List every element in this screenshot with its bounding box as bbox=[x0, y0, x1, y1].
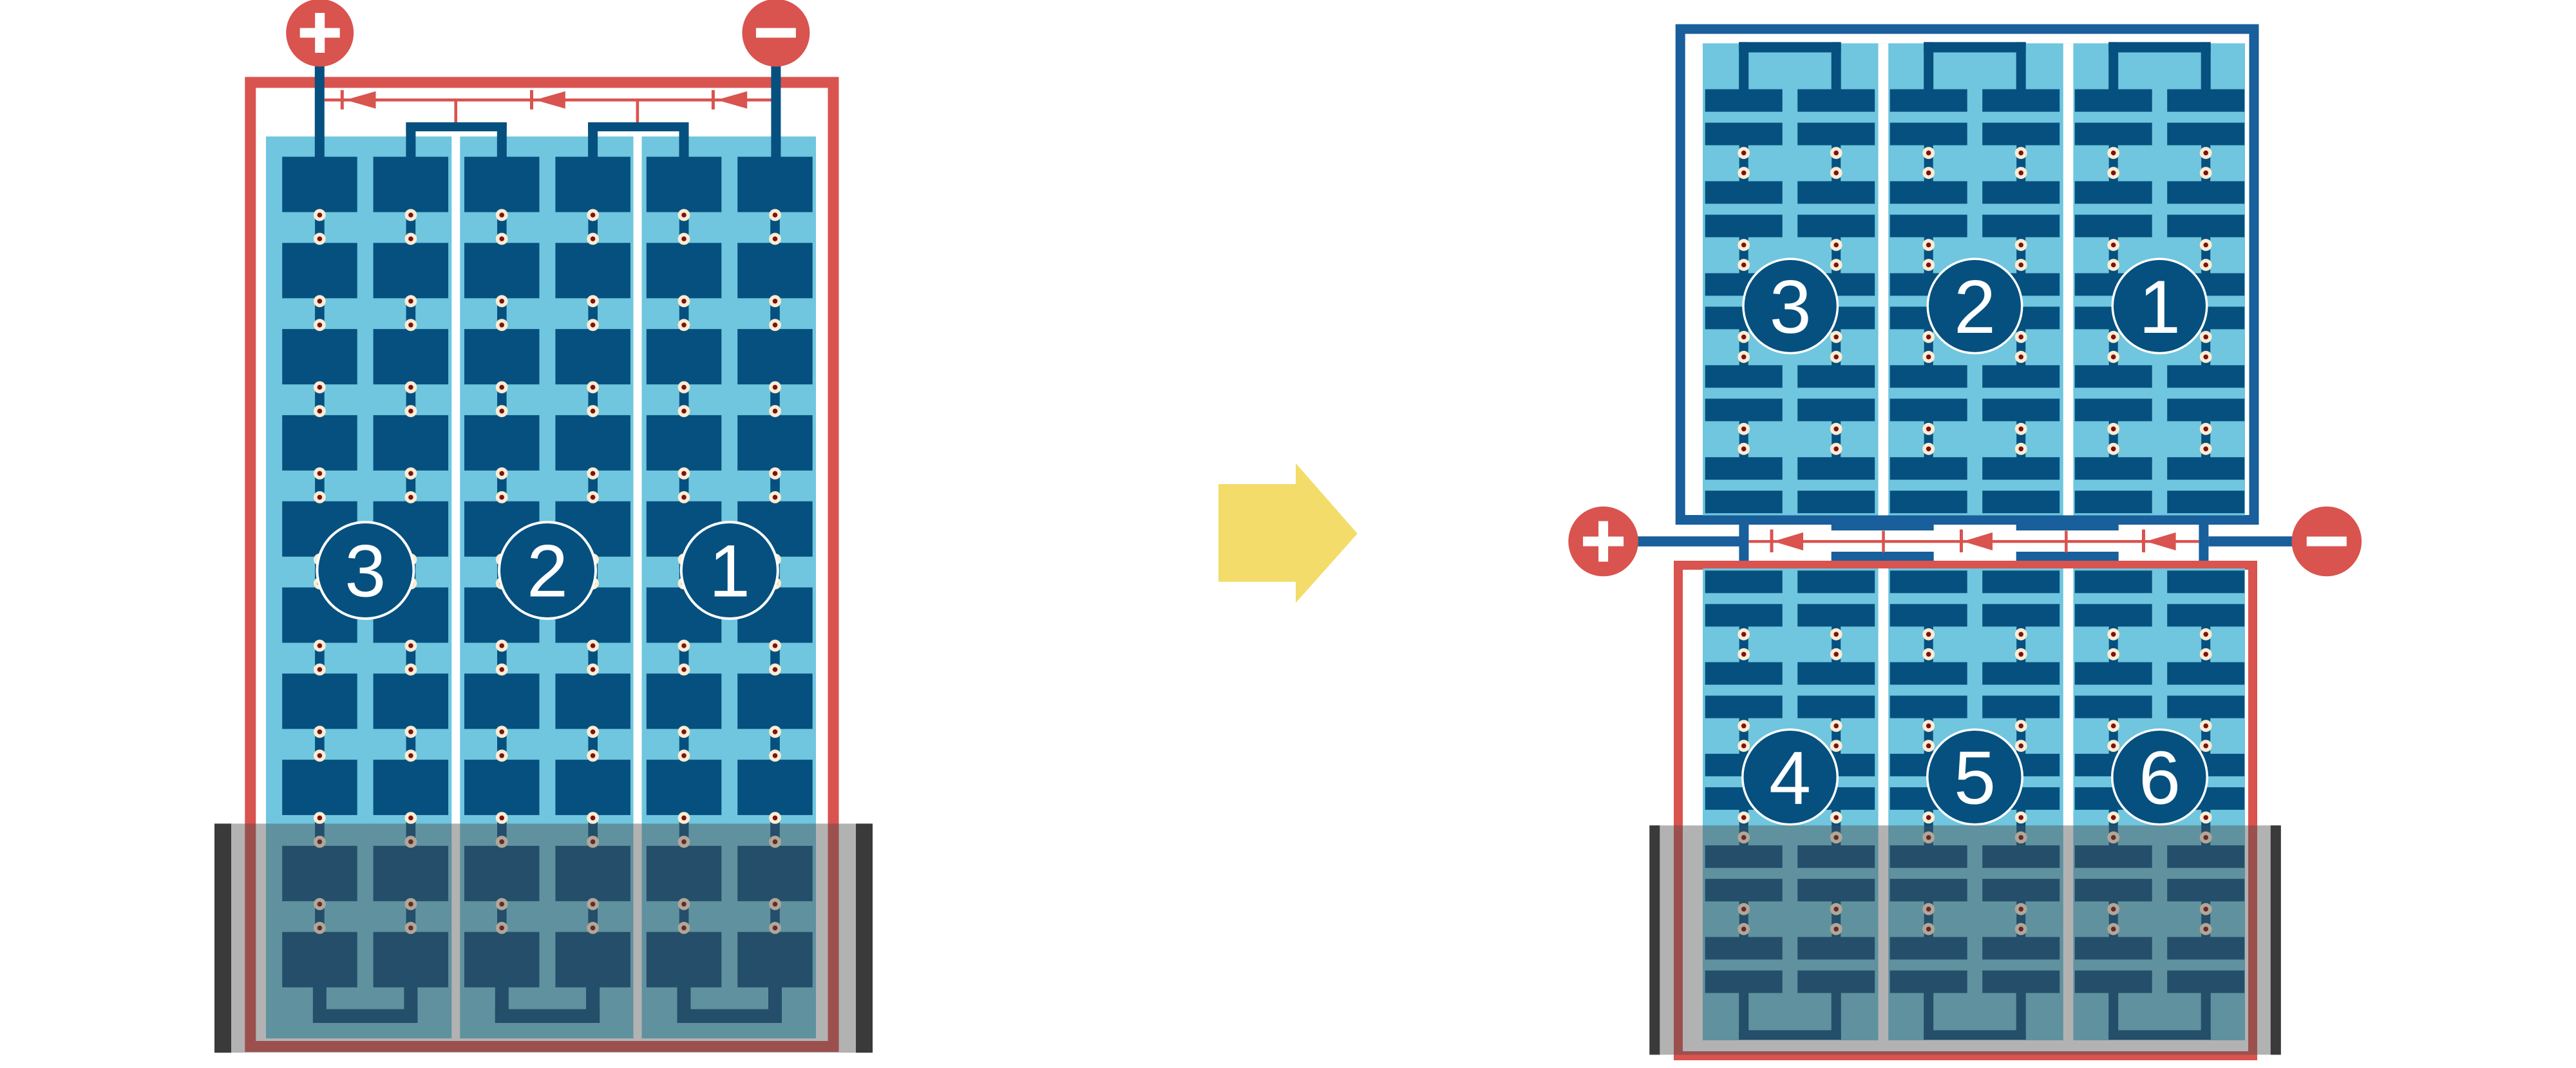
svg-text:3: 3 bbox=[345, 530, 386, 613]
svg-text:2: 2 bbox=[1954, 265, 1996, 349]
svg-text:6: 6 bbox=[2139, 736, 2181, 820]
svg-text:1: 1 bbox=[709, 530, 750, 613]
svg-text:3: 3 bbox=[1770, 265, 1812, 349]
svg-text:1: 1 bbox=[2139, 265, 2181, 349]
svg-text:4: 4 bbox=[1769, 736, 1811, 820]
svg-text:2: 2 bbox=[527, 530, 568, 613]
svg-text:5: 5 bbox=[1954, 736, 1996, 820]
